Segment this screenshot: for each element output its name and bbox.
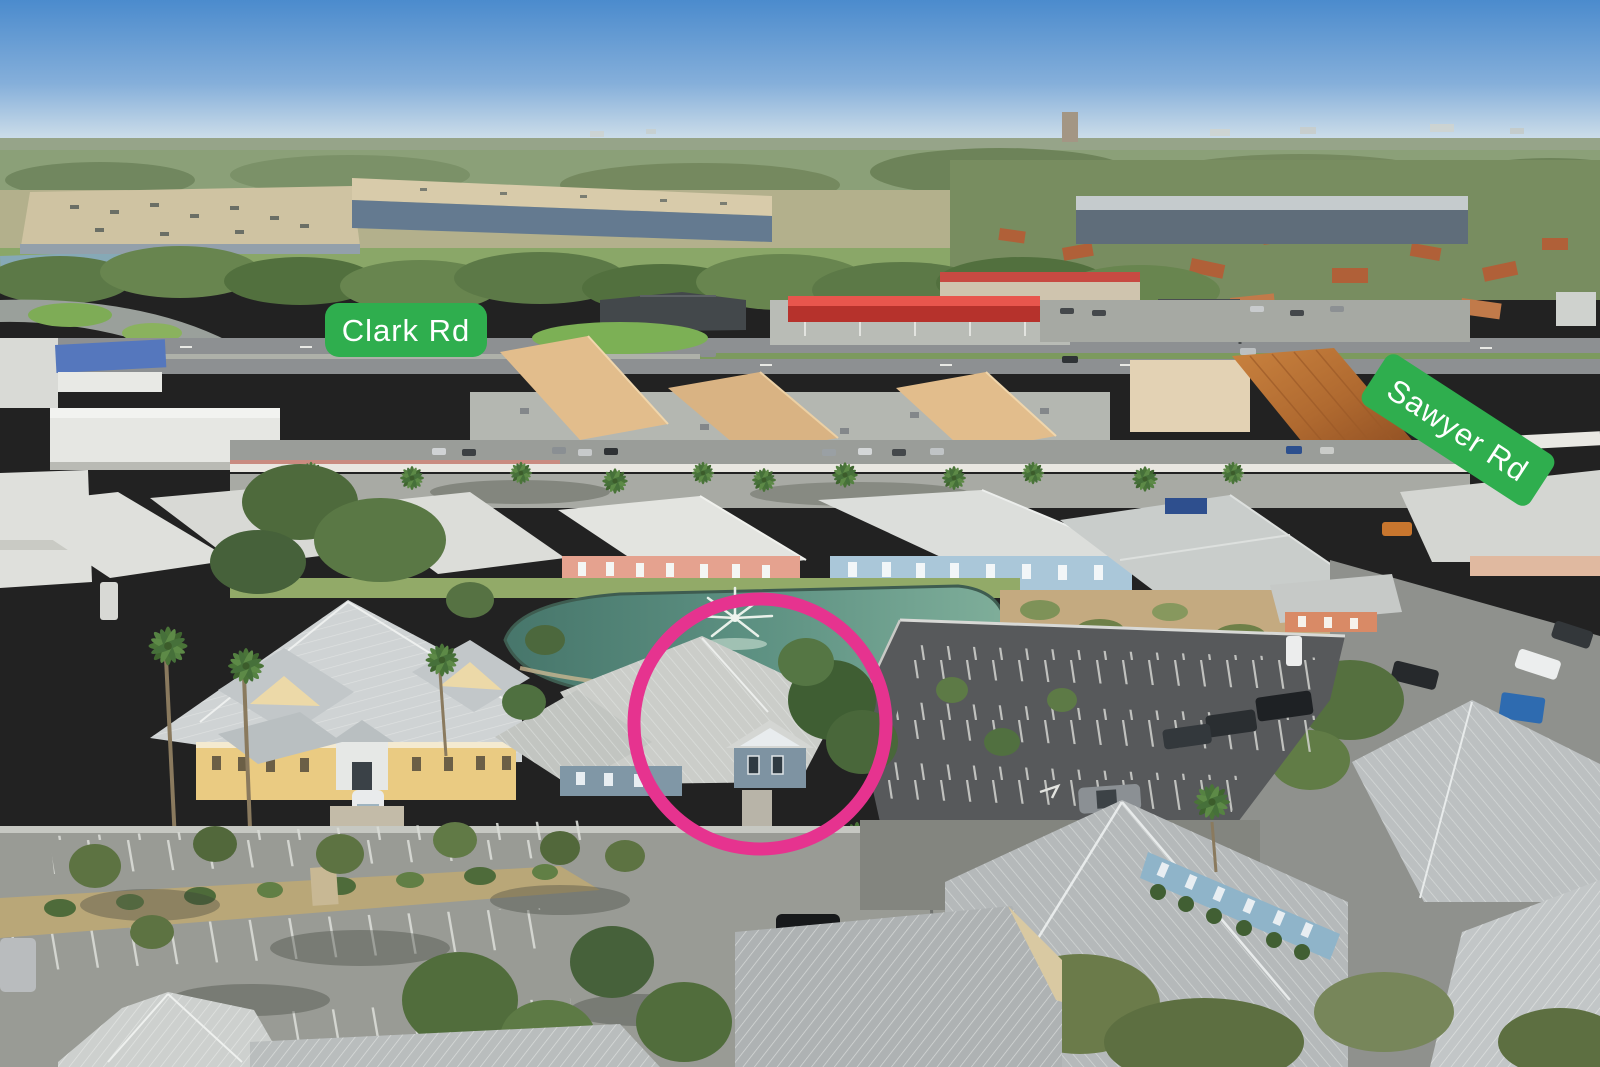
clark-rd-label: Clark Rd [325, 303, 487, 357]
blue-roof-building [55, 339, 166, 373]
silver-suv [0, 938, 36, 992]
gas-station-canopy [788, 296, 1040, 306]
bottom-center-building [735, 906, 1062, 1067]
plaza-parking-north [1040, 300, 1470, 342]
blue-dumpster [1165, 498, 1207, 514]
pink-walled-condo [558, 496, 806, 590]
warehouse-right [1076, 196, 1468, 244]
warehouse-yard [20, 186, 360, 254]
sky [0, 0, 1600, 152]
front-walk [742, 790, 772, 828]
white-pickup [1286, 636, 1302, 666]
orange-jeep [1382, 522, 1412, 536]
clark-rd-label-text: Clark Rd [342, 313, 471, 348]
box-truck [100, 582, 118, 620]
store-cornice [940, 272, 1140, 282]
two-story-yellow-building [150, 600, 530, 836]
palm-tree [1194, 784, 1230, 820]
aerial-scene: Clark Rd Sawyer Rd [0, 0, 1600, 1067]
aerial-photo: Clark Rd Sawyer Rd [0, 0, 1600, 1067]
